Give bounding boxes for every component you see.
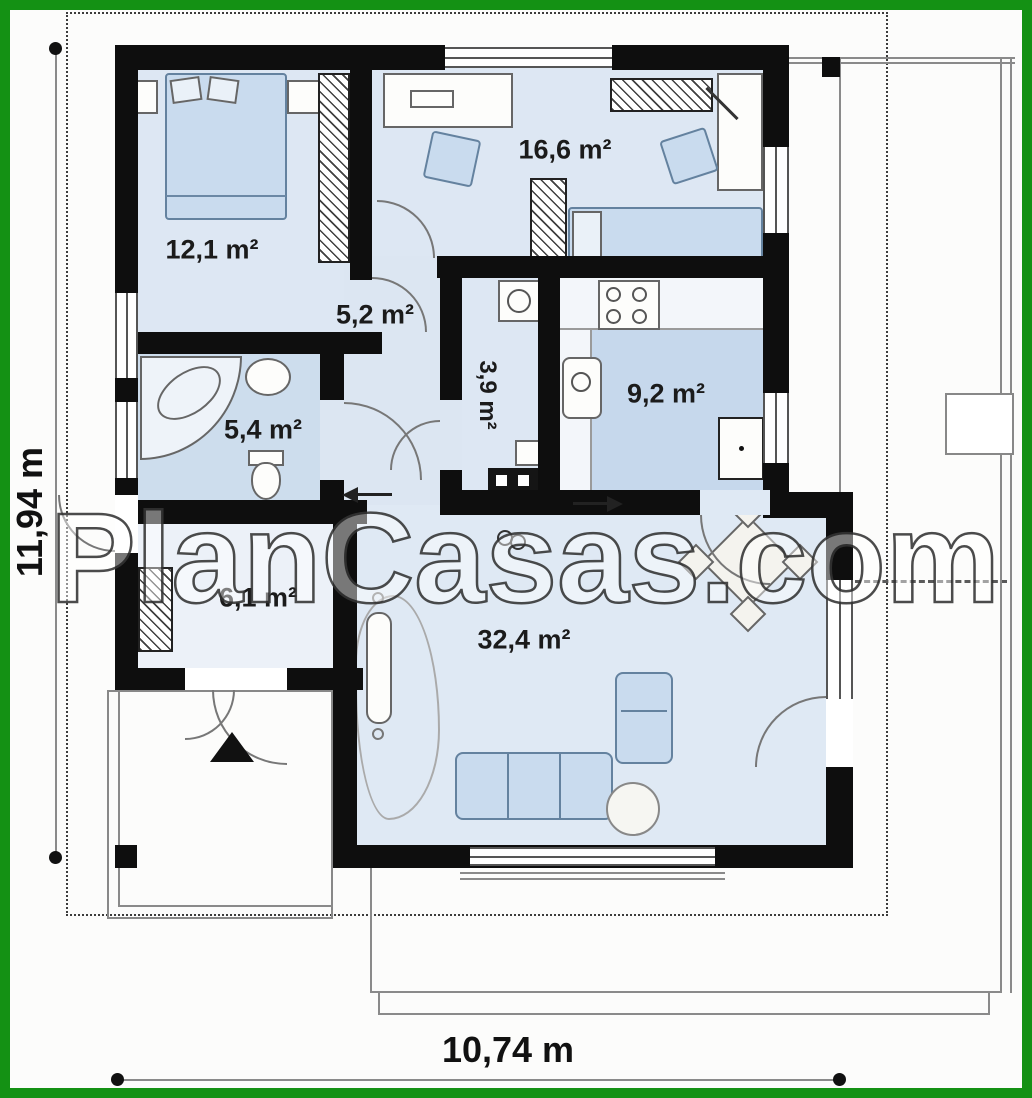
dimension-dot-left bbox=[111, 1073, 124, 1086]
wall-bedroom1-east bbox=[350, 68, 372, 280]
room-label-bedroom2: 16,6 m² bbox=[518, 135, 611, 166]
tv-bench-knob-bottom bbox=[372, 728, 384, 740]
utility-cabinet-door-2 bbox=[518, 475, 529, 486]
room-label-living: 32,4 m² bbox=[477, 625, 570, 656]
room-label-bedroom1: 12,1 m² bbox=[165, 235, 258, 266]
dimension-line-bottom bbox=[115, 1079, 839, 1081]
entrance-arrow-icon bbox=[210, 732, 254, 762]
flow-arrow-kitchen-line bbox=[573, 502, 609, 505]
armchair bbox=[615, 672, 673, 764]
bookshelf bbox=[610, 78, 713, 112]
window-north bbox=[445, 47, 612, 68]
terrace-column bbox=[822, 57, 840, 77]
pillow-left bbox=[169, 76, 202, 104]
tv-bench bbox=[366, 612, 392, 724]
terrace-step-right bbox=[988, 993, 990, 1015]
wall-utility-east bbox=[538, 278, 560, 515]
coffee-table bbox=[606, 782, 660, 836]
room-label-utility: 3,9 m² bbox=[473, 360, 501, 429]
terrace-edge-right-2 bbox=[1010, 57, 1012, 993]
utility-cabinet-door-1 bbox=[496, 475, 507, 486]
dimension-dot-top bbox=[49, 42, 62, 55]
entry-porch-inner-left bbox=[118, 690, 120, 907]
desk-left-lamp bbox=[410, 90, 454, 108]
terrace-south-bottom-edge bbox=[370, 991, 1002, 993]
toilet-bowl bbox=[251, 462, 281, 500]
terrace-step-left bbox=[378, 993, 380, 1015]
wall-bathroom-north bbox=[115, 332, 382, 354]
single-bed-pillow bbox=[572, 211, 602, 259]
entry-porch-inner-bottom bbox=[118, 905, 333, 907]
west-door-opening bbox=[115, 495, 138, 553]
window-bedroom2-east bbox=[763, 147, 789, 233]
window-living-east bbox=[826, 580, 853, 699]
terrace-step-bottom bbox=[378, 1013, 990, 1015]
wall-living-west bbox=[333, 505, 357, 868]
kitchen-sink-basin bbox=[571, 372, 591, 392]
armchair-line bbox=[621, 710, 667, 712]
bed-blanket-line bbox=[166, 195, 286, 197]
bathroom-door-opening bbox=[320, 400, 344, 480]
tv-bench-knob-top bbox=[372, 592, 384, 604]
fridge-dot bbox=[739, 446, 744, 451]
room-label-entry: 6,1 m² bbox=[219, 583, 297, 614]
dimension-line-left bbox=[55, 47, 57, 857]
wall-top-left bbox=[115, 45, 445, 70]
sofa-divider-1 bbox=[507, 754, 509, 818]
terrace-edge-inner bbox=[839, 57, 841, 492]
window-living-south bbox=[470, 847, 715, 866]
desk-right bbox=[717, 73, 763, 191]
room-label-bathroom: 5,4 m² bbox=[224, 415, 302, 446]
stove-burner-4 bbox=[632, 309, 647, 324]
wall-bedroom2-south bbox=[437, 256, 787, 278]
sofa bbox=[455, 752, 613, 820]
bathroom-sink bbox=[245, 358, 291, 396]
dimension-label-width: 10,74 m bbox=[442, 1029, 574, 1071]
terrace-south-left-edge bbox=[370, 862, 372, 993]
window-sill-line-2 bbox=[460, 878, 725, 880]
washing-machine-drum bbox=[507, 289, 531, 313]
terrace-bumpout bbox=[945, 393, 1014, 455]
pillow-right bbox=[206, 76, 239, 104]
wardrobe-bedroom1 bbox=[318, 73, 350, 263]
flow-arrow-kitchen-icon bbox=[607, 496, 623, 512]
living-terrace-door-opening bbox=[826, 696, 853, 767]
kitchen-door-opening bbox=[700, 490, 770, 515]
room-label-hallway: 5,2 m² bbox=[336, 300, 414, 331]
stove-burner-3 bbox=[606, 309, 621, 324]
window-bathroom-west bbox=[115, 402, 138, 478]
flow-arrow-hall-icon bbox=[342, 487, 358, 503]
dresser-bedroom2 bbox=[530, 178, 567, 263]
dimension-label-height: 11,94 m bbox=[9, 447, 51, 577]
stove-burner-2 bbox=[632, 287, 647, 302]
terrace-edge-right-1 bbox=[1000, 57, 1002, 993]
fixture-symbol-2 bbox=[510, 534, 526, 550]
stove bbox=[598, 280, 660, 330]
wall-utility-west bbox=[440, 278, 462, 515]
sofa-divider-2 bbox=[559, 754, 561, 818]
utility-door-opening bbox=[440, 400, 462, 470]
window-sill-line-1 bbox=[460, 872, 725, 874]
flow-arrow-hall-line bbox=[356, 493, 392, 496]
dimension-dot-right bbox=[833, 1073, 846, 1086]
floor-plan-image: 12,1 m² 16,6 m² 5,2 m² 3,9 m² 5,4 m² 9,2… bbox=[0, 0, 1032, 1098]
room-label-kitchen: 9,2 m² bbox=[627, 379, 705, 410]
wardrobe-entry bbox=[138, 567, 173, 652]
plan-canvas: 12,1 m² 16,6 m² 5,2 m² 3,9 m² 5,4 m² 9,2… bbox=[10, 10, 1022, 1088]
porch-column bbox=[115, 845, 137, 868]
stove-burner-1 bbox=[606, 287, 621, 302]
entry-door-opening bbox=[185, 668, 287, 690]
roof-overhang-dashed-line bbox=[855, 580, 1007, 583]
window-kitchen-east bbox=[763, 393, 789, 463]
desk-chair-left bbox=[423, 130, 482, 187]
window-bedroom1-west bbox=[115, 293, 138, 378]
dimension-dot-bottom bbox=[49, 851, 62, 864]
